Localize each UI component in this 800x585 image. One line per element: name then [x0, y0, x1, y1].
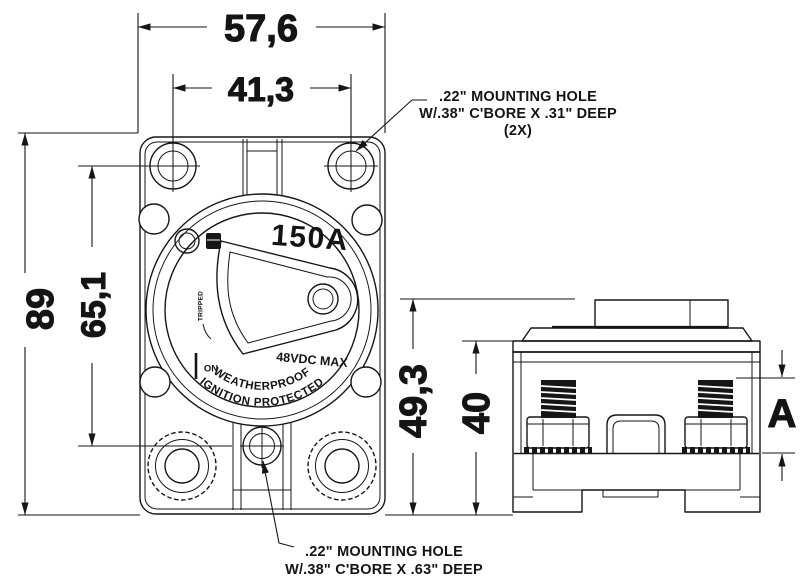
hex-nut-right [685, 417, 747, 448]
dimensions: 57,6 41,3 89 65,1 [18, 8, 796, 515]
dim-side-body-height-value: 40 [456, 392, 498, 434]
bezel-ear-top-right [352, 205, 382, 235]
bezel-ear-top-left [139, 204, 169, 234]
terminal-right [308, 432, 376, 500]
side-flange-upper [522, 328, 752, 341]
dim-side-body-height: 40 [456, 341, 513, 515]
bottom-note-line1: .22" MOUNTING HOLE [305, 544, 463, 560]
bezel-ear-bottom-left [140, 367, 170, 397]
top-note-leader [356, 100, 427, 151]
bottom-note-leader [263, 461, 294, 547]
terminal-left [148, 432, 216, 500]
side-bottom-tab [603, 490, 658, 497]
mounting-hole-top-right [324, 140, 378, 192]
bottom-note-line2: W/.38" C'BORE X .63" DEEP [285, 562, 483, 578]
terminal-right-serrated-washer [308, 432, 376, 500]
dim-side-overall-height-value: 49,3 [393, 364, 435, 438]
dim-overall-height-value: 89 [20, 288, 62, 330]
mounting-hole-top-left [146, 140, 200, 192]
terminal-right-stud [325, 449, 359, 483]
dim-overall-width-value: 57,6 [224, 8, 298, 50]
dim-hole-spacing-vertical-value: 65,1 [75, 272, 113, 338]
dim-hole-spacing-horizontal-value: 41,3 [228, 71, 294, 109]
bezel-ear-bottom-right [351, 367, 381, 397]
side-terminal-stud-right [682, 380, 750, 450]
top-note-line1: .22" MOUNTING HOLE [439, 89, 597, 105]
side-terminal-stud-left [524, 380, 592, 450]
side-body-outline [513, 352, 760, 512]
terminal-left-serrated-washer [148, 432, 216, 500]
tripped-label: TRIPPED [198, 291, 205, 321]
dim-hole-spacing-horizontal: 41,3 [173, 71, 351, 145]
rating-label: 150A [270, 219, 350, 257]
dim-stud-height: A [736, 350, 796, 481]
hex-nut-left [527, 417, 589, 448]
top-note-line3: (2X) [504, 123, 532, 139]
technical-drawing-canvas: 150A TRIPPED ON 48VDC MAX WEATHERPROOF I [0, 0, 800, 585]
mounting-hole-bottom-center [240, 427, 284, 468]
bottom-mounting-hole-note: .22" MOUNTING HOLE W/.38" C'BORE X .63" … [285, 544, 483, 578]
top-mounting-hole-note: .22" MOUNTING HOLE W/.38" C'BORE X .31" … [419, 89, 617, 139]
dim-stud-height-value: A [768, 392, 797, 436]
side-lever-knob [595, 300, 728, 328]
side-flange-lower [513, 341, 760, 352]
top-note-line2: W/.38" C'BORE X .31" DEEP [419, 106, 617, 122]
side-view [513, 300, 760, 512]
mode-indicator-icon [206, 233, 221, 249]
front-view: 150A TRIPPED ON 48VDC MAX WEATHERPROOF I [139, 137, 385, 514]
terminal-left-stud [165, 449, 199, 483]
